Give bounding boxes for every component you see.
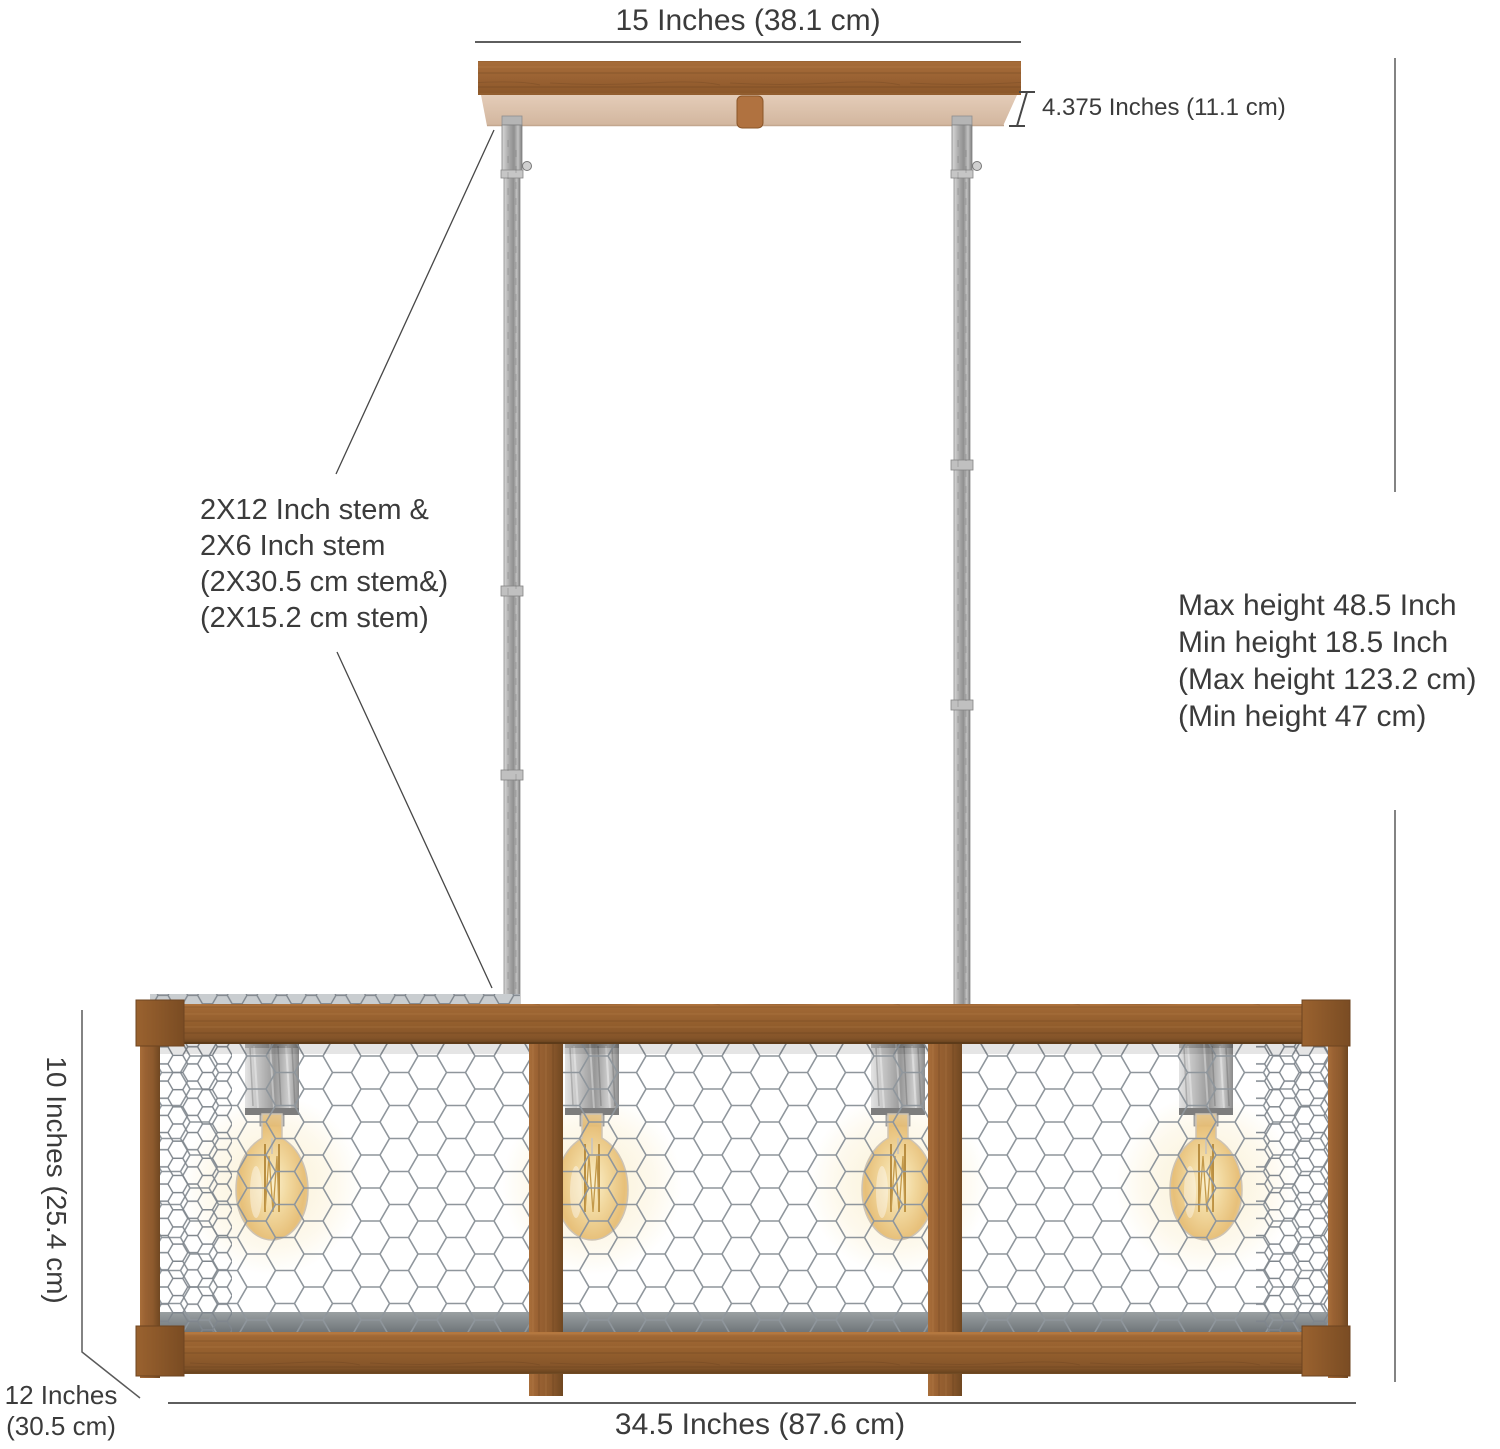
stem-coupling [501, 770, 523, 780]
height-note: Max height 48.5 Inch Min height 18.5 Inc… [1178, 587, 1476, 735]
height-note-line-3: (Max height 123.2 cm) [1178, 661, 1476, 698]
stem-note: 2X12 Inch stem & 2X6 Inch stem (2X30.5 c… [200, 492, 448, 636]
mesh-panel-2 [563, 1044, 928, 1332]
ceiling-canopy [478, 61, 1021, 128]
stem-thumbscrew [973, 162, 982, 171]
canopy-center-knob [737, 96, 763, 128]
cage-height-label: 10 Inches (25.4 cm) [40, 1008, 72, 1352]
cage-height-dimension-line [82, 1010, 140, 1398]
cage-depth-line-2: (30.5 cm) [0, 1411, 122, 1442]
height-note-line-1: Max height 48.5 Inch [1178, 587, 1476, 624]
canopy-height-label: 4.375 Inches (11.1 cm) [1042, 94, 1286, 122]
stem-note-line-3: (2X30.5 cm stem&) [200, 564, 448, 600]
left-stem-pipe [501, 125, 532, 1008]
stem-note-line-2: 2X6 Inch stem [200, 528, 448, 564]
mesh-side-left [160, 1044, 232, 1332]
corner-cap-top-right [1302, 1000, 1350, 1046]
cage-shade [136, 994, 1350, 1396]
canopy-width-label: 15 Inches (38.1 cm) [448, 4, 1048, 38]
corner-cap-bottom-left [136, 1326, 184, 1376]
height-note-line-4: (Min height 47 cm) [1178, 698, 1476, 735]
stem-coupling [501, 586, 523, 596]
cage-depth-line-1: 12 Inches [0, 1380, 122, 1411]
stem-note-line-1: 2X12 Inch stem & [200, 492, 448, 528]
stem-thumbscrew [523, 162, 532, 171]
cage-width-label: 34.5 Inches (87.6 cm) [460, 1408, 1060, 1442]
stem-coupling [951, 700, 973, 710]
frame-post-right [1328, 1004, 1348, 1378]
right-stem-mount [952, 116, 972, 126]
frame-post-left [140, 1004, 160, 1378]
stem-note-line-4: (2X15.2 cm stem) [200, 600, 448, 636]
mesh-side-right [1256, 1044, 1328, 1332]
left-stem-mount [502, 116, 522, 126]
product-dimension-diagram: 15 Inches (38.1 cm) 4.375 Inches (11.1 c… [0, 0, 1500, 1449]
cage-depth-label: 12 Inches (30.5 cm) [0, 1380, 122, 1442]
corner-cap-top-left [136, 1000, 184, 1046]
corner-cap-bottom-right [1302, 1326, 1350, 1376]
stem-leader-line-upper [336, 130, 494, 474]
height-note-line-2: Min height 18.5 Inch [1178, 624, 1476, 661]
right-stem-pipe [951, 125, 982, 1008]
stem-coupling [951, 460, 973, 470]
canopy-wood-grain [478, 61, 1021, 95]
stem-leader-line-lower [337, 652, 492, 988]
